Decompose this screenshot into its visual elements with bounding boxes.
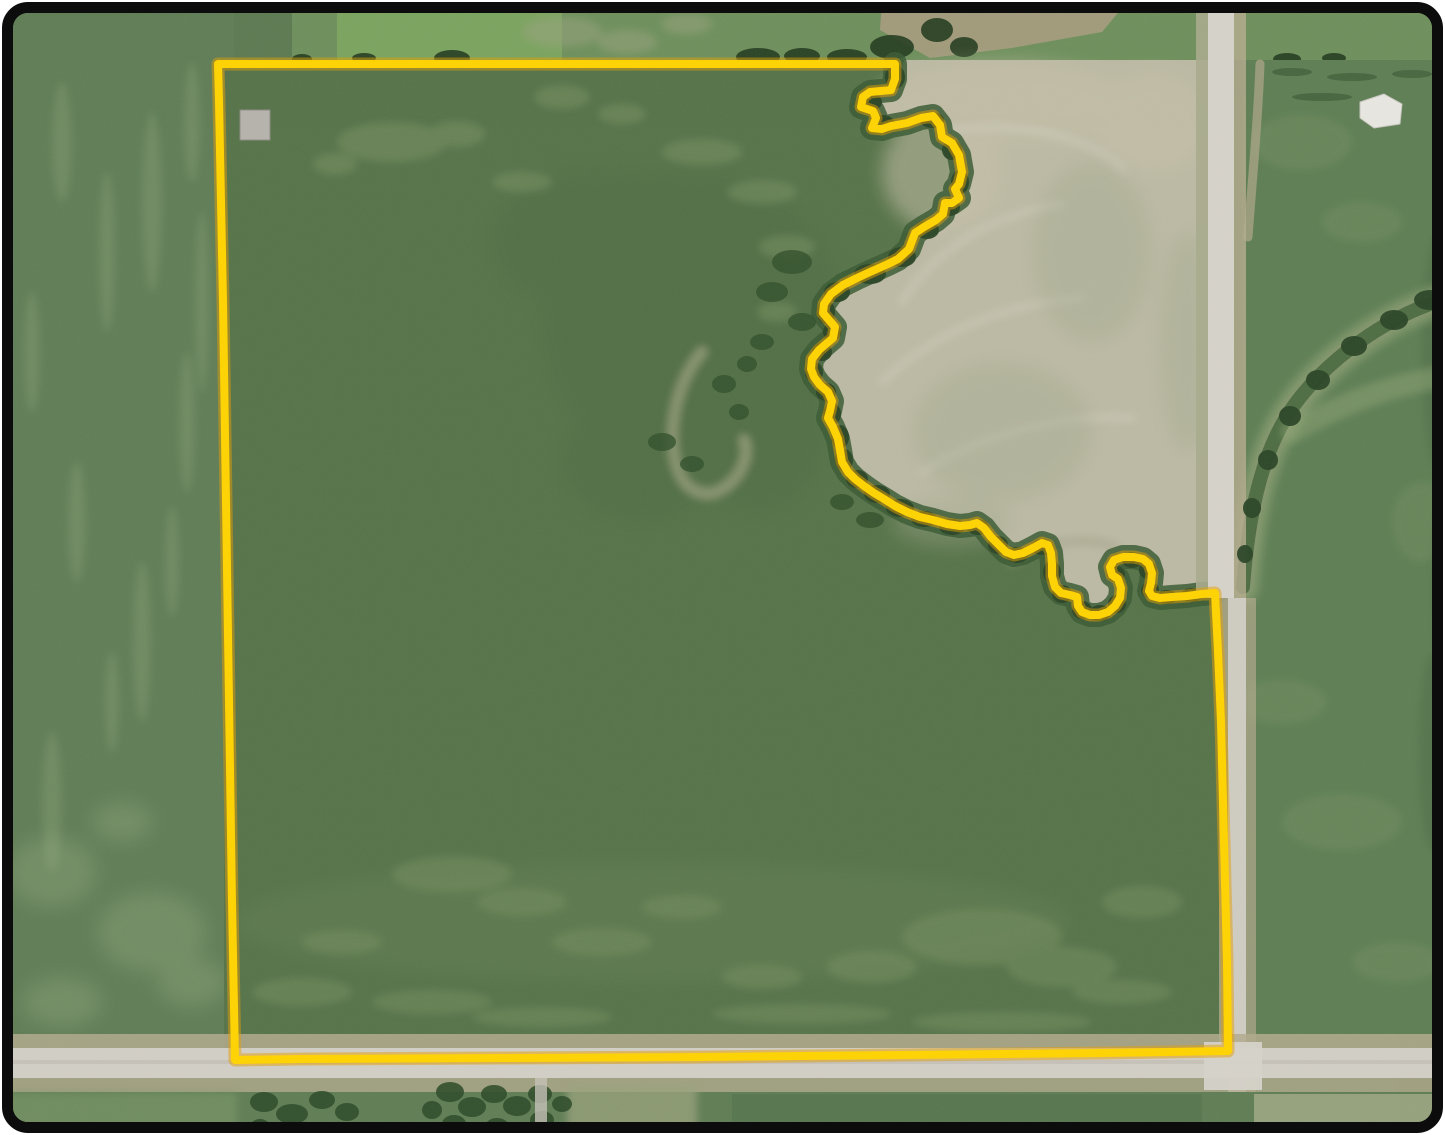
aerial-map-image xyxy=(2,2,1443,1133)
aerial-map-frame xyxy=(2,2,1443,1133)
grain-overlay xyxy=(2,2,1443,1133)
page xyxy=(0,0,1445,1135)
east-field-dark-streaks-blob xyxy=(1433,502,1443,662)
